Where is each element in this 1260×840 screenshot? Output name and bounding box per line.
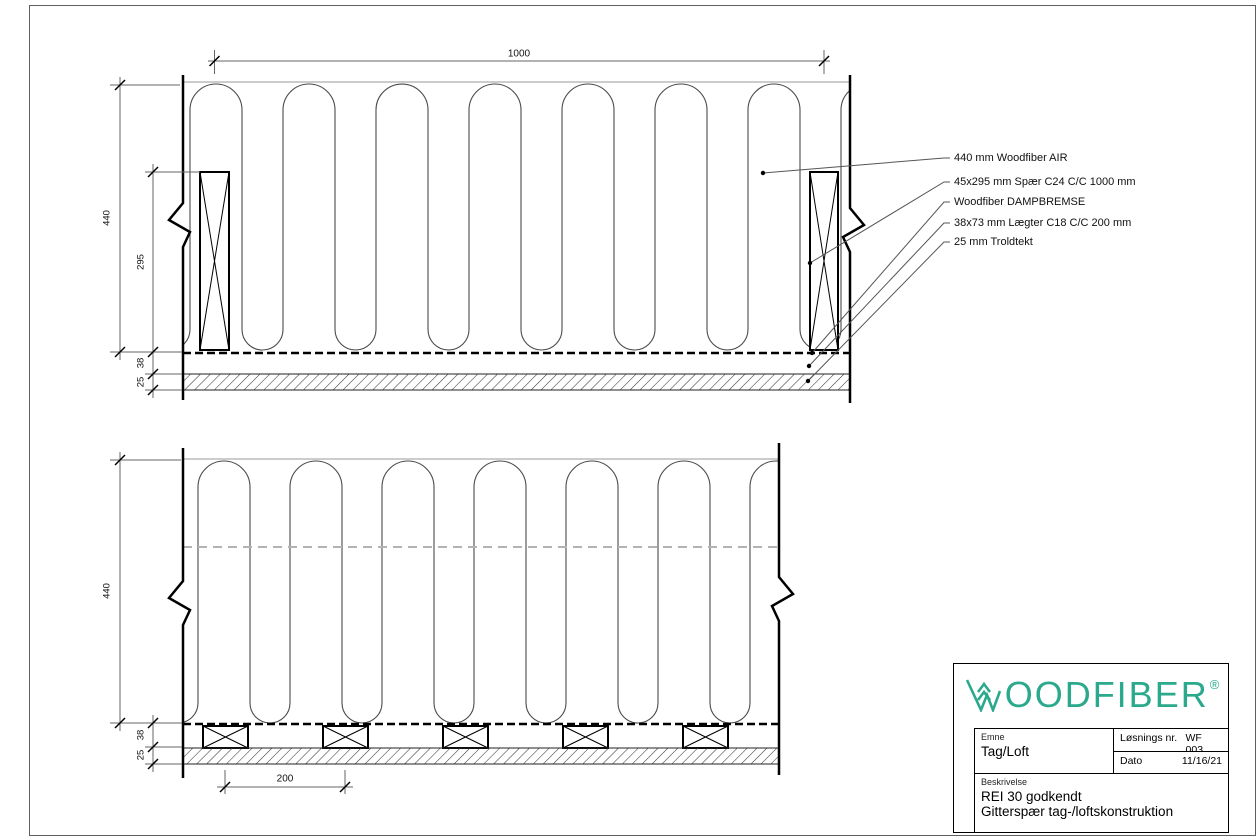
dim-label-38-top: 38 (136, 358, 147, 369)
callout-laegter: 38x73 mm Lægter C18 C/C 200 mm (954, 217, 1131, 229)
brand-wordmark: OODFIBER (1005, 677, 1209, 713)
drawing-sheet: 1000 440 295 38 25 440 mm Woodfiber AIR … (0, 0, 1260, 840)
dim-label-295: 295 (136, 254, 147, 270)
callout-dampbremse: Woodfiber DAMPBREMSE (954, 196, 1085, 208)
dim-label-1000: 1000 (508, 49, 530, 60)
description-cell: Beskrivelse REI 30 godkendt Gitterspær t… (974, 773, 1229, 833)
boundary-left-bottom (169, 448, 190, 778)
dim-label-440-bottom: 440 (102, 583, 113, 599)
dim-label-25-bottom: 25 (136, 750, 147, 761)
description-line1: REI 30 godkendt (981, 789, 1222, 804)
dims-left-bottom (110, 452, 182, 772)
insulation-serpentine-bottom (158, 461, 802, 723)
date-cell: Dato 11/16/21 (1113, 751, 1229, 774)
solution-number-cell: Løsnings nr. WF 003 (1113, 728, 1229, 752)
woodfiber-logo: OODFIBER ® (953, 663, 1229, 727)
troldtekt-board-bottom (183, 748, 779, 764)
dim-label-200: 200 (277, 774, 294, 785)
date-label: Dato (1120, 755, 1182, 767)
boundary-left-top (169, 75, 190, 400)
bottom-section-drawing (110, 443, 802, 794)
dim-label-38-bottom: 38 (136, 730, 147, 741)
description-line2: Gitterspær tag-/loftskonstruktion (981, 804, 1222, 819)
callout-woodfiber-air: 440 mm Woodfiber AIR (954, 152, 1068, 164)
emne-label: Emne (981, 732, 1107, 742)
callout-spaer: 45x295 mm Spær C24 C/C 1000 mm (954, 176, 1136, 188)
dim-label-440-top: 440 (102, 210, 113, 226)
top-section-drawing (110, 50, 950, 403)
date-value: 11/16/21 (1182, 755, 1222, 767)
troldtekt-board-top (183, 374, 850, 390)
description-label: Beskrivelse (981, 777, 1222, 787)
callout-troldtekt: 25 mm Troldtekt (954, 236, 1033, 248)
spaer-left (200, 172, 229, 350)
woodfiber-w-mark (964, 678, 1004, 712)
emne-cell: Emne Tag/Loft (974, 728, 1114, 774)
dim-label-25-top: 25 (136, 377, 147, 388)
callout-leaders (761, 158, 950, 383)
registered-trademark: ® (1210, 677, 1220, 692)
insulation-serpentine-top (149, 84, 893, 350)
laegter-battens (203, 726, 728, 748)
emne-value: Tag/Loft (981, 744, 1107, 759)
